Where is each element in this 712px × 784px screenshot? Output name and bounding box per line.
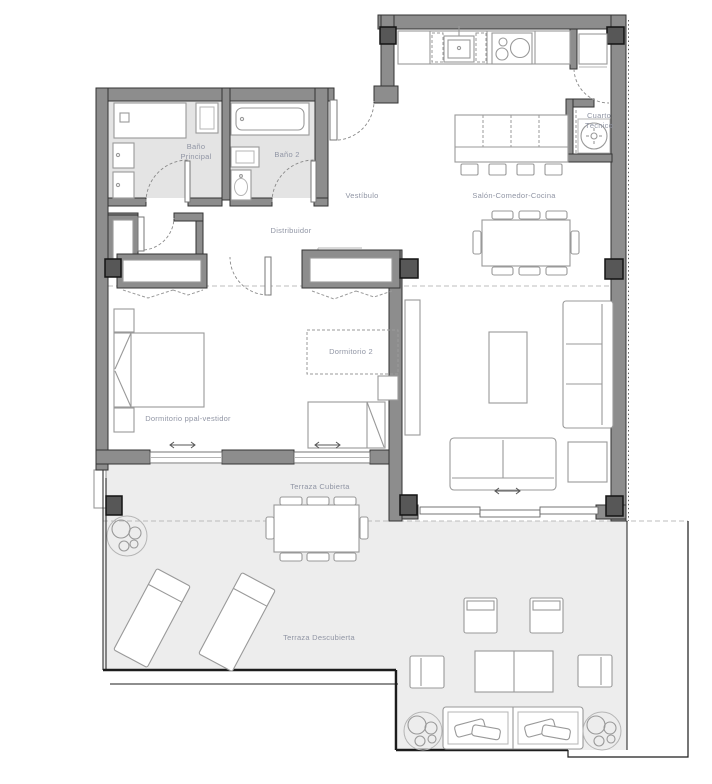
door-dormitorio-ppal: [138, 217, 174, 251]
nightstand: [114, 309, 134, 332]
label-line: Cuarto: [585, 111, 613, 121]
floor-plan: Baño Principal Baño 2 Vestíbulo Salón-Co…: [0, 0, 712, 784]
living-set: [405, 300, 613, 490]
washbasin: [231, 147, 259, 167]
dining-table: [482, 220, 570, 266]
label-terraza-cubierta: Terraza Cubierta: [290, 482, 349, 492]
outdoor-armchair: [464, 598, 497, 633]
label-bano-principal: Baño Principal: [180, 142, 211, 162]
outdoor-sofa: [443, 707, 583, 749]
label-bano-2: Baño 2: [274, 150, 299, 160]
outdoor-chair: [307, 497, 329, 505]
dining-chair: [571, 231, 579, 254]
sofa-3-seat: [563, 301, 613, 428]
window-dormitorio-2: [294, 452, 370, 463]
kitchen-counter: [398, 31, 570, 64]
label-distribuidor: Distribuidor: [271, 226, 312, 236]
label-dormitorio-ppal: Dormitorio ppal-vestidor: [145, 414, 231, 424]
coffee-table: [489, 332, 527, 403]
label-terraza-descubierta: Terraza Descubierta: [283, 633, 355, 643]
sofa-2-seat: [450, 438, 556, 490]
window-dormitorio-ppal: [150, 452, 222, 463]
dining-chair: [519, 211, 540, 219]
dining-chair: [519, 267, 540, 275]
fridge-cabinet: [579, 34, 607, 67]
label-line: Técnico: [585, 121, 613, 131]
shower-tray: [114, 103, 186, 138]
outdoor-side-chair: [410, 656, 444, 688]
outdoor-chair: [280, 553, 302, 561]
tv-sideboard: [405, 300, 420, 435]
plant: [404, 712, 442, 750]
label-line: Baño: [180, 142, 211, 152]
bar-stools: [461, 164, 562, 175]
single-bed: [308, 402, 385, 448]
outdoor-coffee-table: [475, 651, 553, 692]
outdoor-chair: [334, 553, 356, 561]
dining-set: [473, 211, 579, 275]
toilet: [231, 170, 251, 200]
nightstand: [114, 408, 134, 432]
label-salon: Salón-Comedor-Cocina: [472, 191, 555, 201]
sliding-arrow-icon: [170, 442, 195, 448]
dining-chair: [492, 211, 513, 219]
door-cuarto-tecnico: [574, 69, 609, 103]
dining-chair: [546, 267, 567, 275]
double-bed: [114, 333, 204, 407]
outdoor-chair: [266, 517, 274, 539]
wardrobe-dormitorio-2: [302, 250, 400, 299]
bath-cabinet: [196, 103, 218, 133]
dining-chair: [546, 211, 567, 219]
outdoor-side-chair: [578, 655, 612, 687]
outdoor-armchair: [530, 598, 563, 633]
side-table: [568, 442, 607, 482]
label-cuarto-tecnico: Cuarto Técnico: [585, 111, 613, 131]
wardrobe-dormitorio-ppal: [117, 254, 207, 298]
label-dormitorio-2: Dormitorio 2: [329, 347, 373, 357]
bathtub: [231, 103, 309, 135]
sliding-door-salon: [420, 507, 598, 517]
label-line: Principal: [180, 152, 211, 162]
label-vestibulo: Vestíbulo: [345, 191, 378, 201]
plant: [583, 712, 621, 750]
dining-chair: [473, 231, 481, 254]
outdoor-chair: [280, 497, 302, 505]
kitchen-island: [455, 115, 568, 162]
outdoor-chair: [334, 497, 356, 505]
dining-chair: [492, 267, 513, 275]
outdoor-chair: [307, 553, 329, 561]
nightstand: [378, 376, 398, 400]
door-dormitorio-2: [230, 257, 271, 295]
entrance-door: [330, 100, 374, 140]
cooktop: [492, 33, 532, 64]
outdoor-chair: [360, 517, 368, 539]
washbasin: [113, 172, 134, 198]
washbasin: [113, 143, 134, 168]
outdoor-dining-table: [274, 505, 359, 552]
